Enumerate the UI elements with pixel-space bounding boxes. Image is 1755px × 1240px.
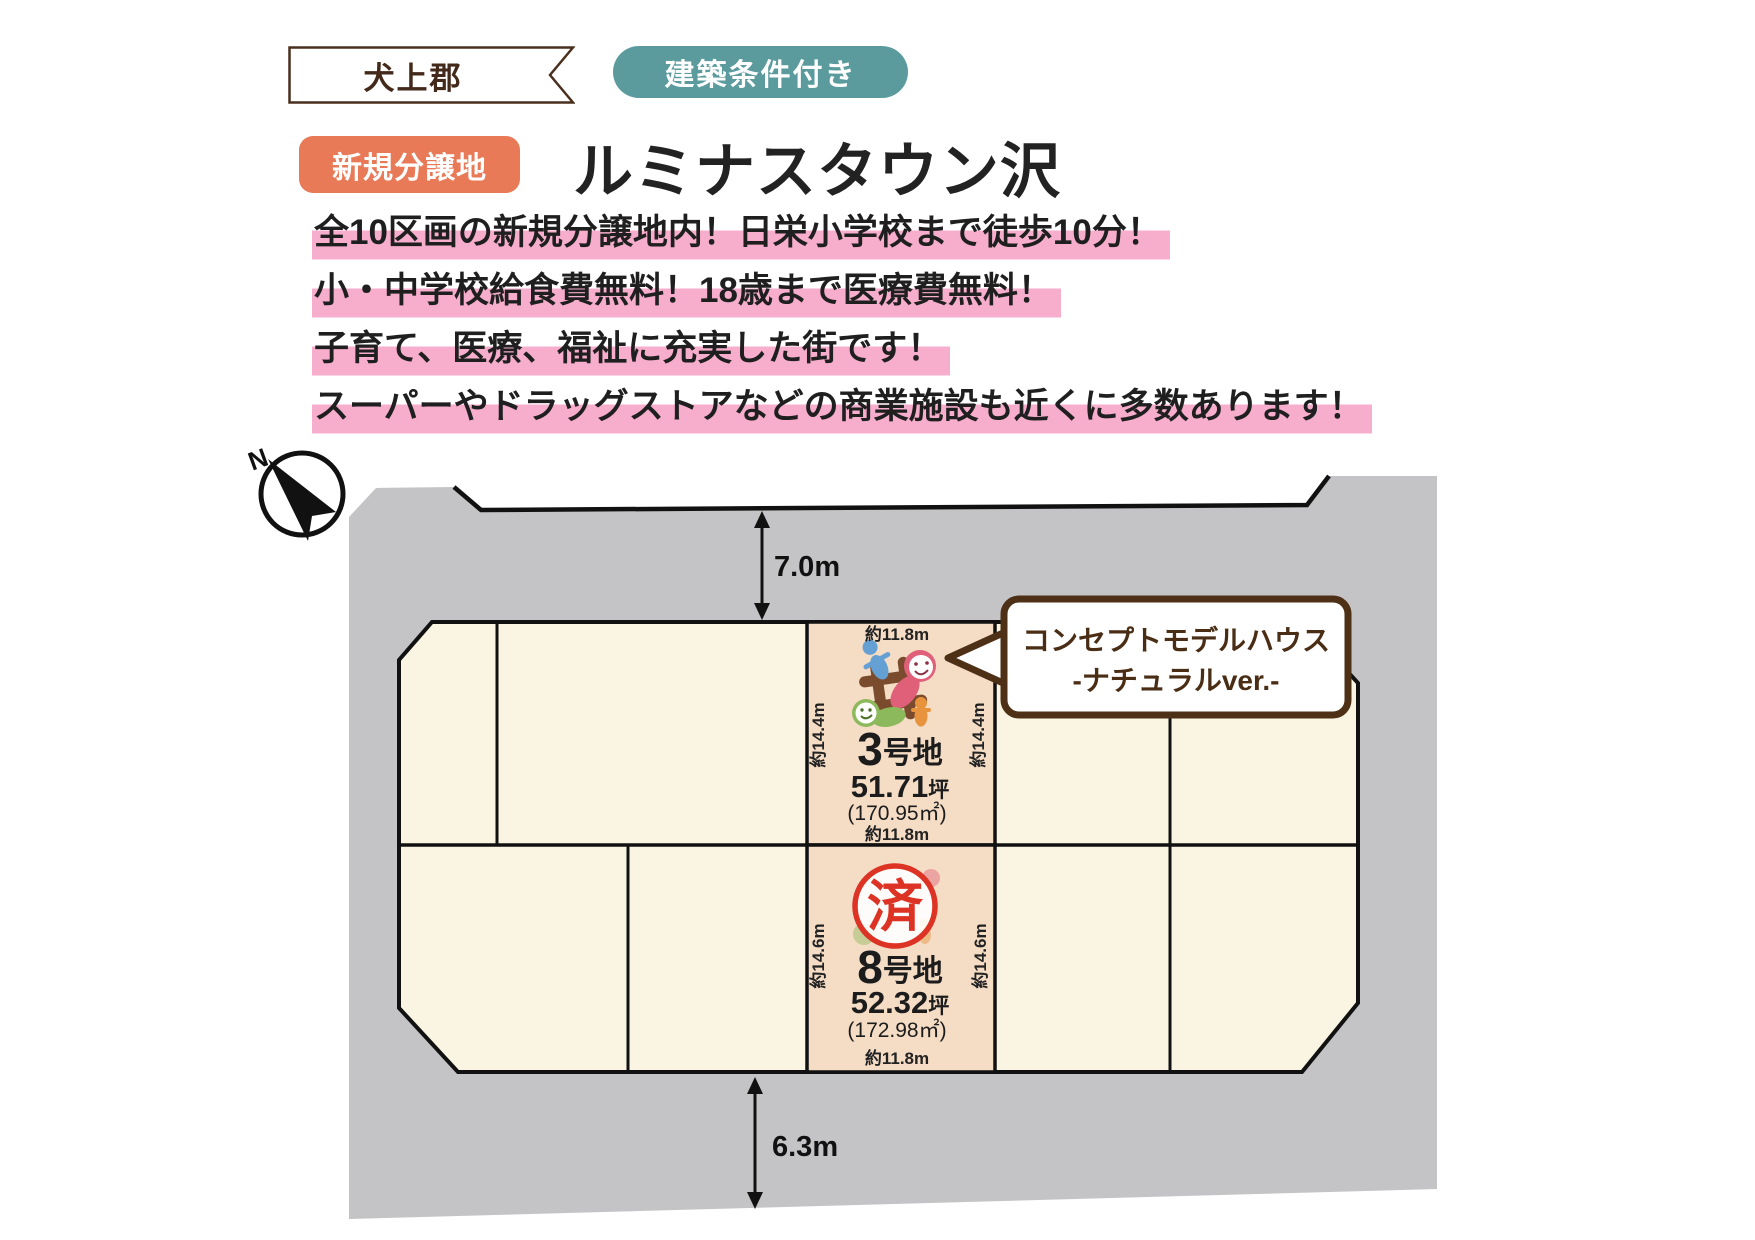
bubble-line1: コンセプトモデルハウス bbox=[1022, 624, 1330, 656]
lot3-dim-right: 約14.4m bbox=[968, 702, 988, 767]
sold-stamp-text: 済 bbox=[867, 875, 924, 938]
compass-north-label: N bbox=[244, 442, 272, 477]
bubble-line2: -ナチュラルver.- bbox=[1073, 665, 1280, 696]
lot3-dim-top: 約11.8m bbox=[865, 624, 929, 644]
lot8-dim-left: 約14.6m bbox=[808, 923, 828, 988]
lot8-area-sqm: (172.98㎡) bbox=[847, 1018, 946, 1042]
site-plan: 7.0m 6.3m N bbox=[0, 0, 1755, 1240]
lot8-dim-bottom: 約11.8m bbox=[865, 1048, 929, 1068]
model-house-bubble: コンセプトモデルハウス -ナチュラルver.- bbox=[948, 599, 1348, 715]
lot3-dim-left: 約14.4m bbox=[808, 702, 828, 767]
lot3-area-sqm: (170.95㎡) bbox=[847, 801, 946, 825]
lot3-dim-bottom: 約11.8m bbox=[865, 824, 929, 844]
road-bottom-width-label: 6.3m bbox=[772, 1131, 838, 1163]
compass-icon: N bbox=[244, 442, 343, 541]
sold-stamp: 済 bbox=[855, 866, 935, 946]
road-top-boundary bbox=[454, 476, 1329, 510]
lot8-dim-right: 約14.6m bbox=[970, 923, 990, 988]
road-top-width-label: 7.0m bbox=[774, 551, 840, 583]
flyer-page: 犬上郡 建築条件付き 新規分譲地 ルミナスタウン沢 全10区画の新規分譲地内！日… bbox=[0, 0, 1755, 1240]
